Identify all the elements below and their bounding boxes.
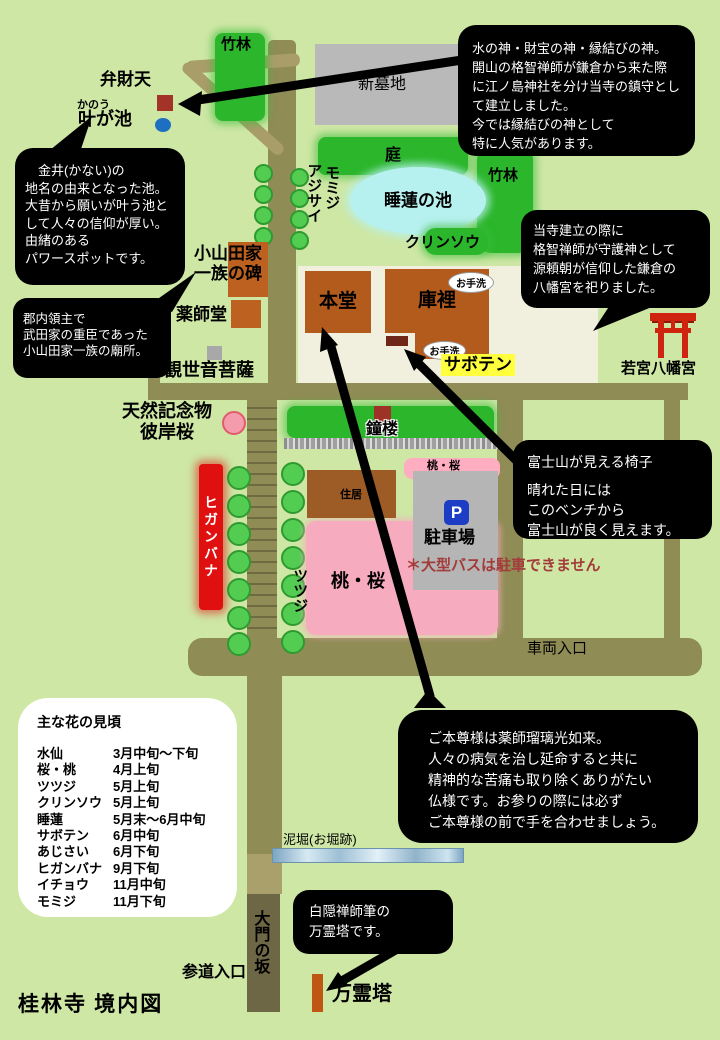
flower-name: イチョウ: [37, 877, 113, 893]
flower-period: 5月上旬: [113, 779, 159, 794]
bush: [227, 632, 251, 656]
kanagaike-note-bubble: 金井(かない)の 地名の由来となった池。 大昔から願いが叶う池と して人々の信仰…: [15, 148, 185, 285]
no-bus-note: ＊大型バスは駐車できません: [406, 557, 601, 574]
vehicle-entrance-label: 車両入口: [527, 640, 587, 657]
flower-period: 5月上旬: [113, 795, 159, 810]
moat-water: [272, 848, 464, 863]
bush: [227, 466, 251, 490]
bush: [254, 206, 273, 225]
kanagaike-pond-marker: [155, 118, 171, 132]
legend-row: イチョウ11月中旬: [37, 877, 237, 893]
flower-period: 4月上旬: [113, 762, 159, 777]
bamboo-grove-top-label: 竹林: [221, 36, 251, 53]
wakamiya-shrine-label: 若宮八幡宮: [621, 360, 696, 377]
bush: [281, 546, 305, 570]
hachimangu-note-bubble: 当寺建立の際に 格智禅師が守護神として 源頼朝が信仰した鎌倉の 八幡宮を祀りまし…: [521, 210, 710, 308]
legend-row: 桜・桃4月上旬: [37, 762, 237, 778]
bush: [227, 494, 251, 518]
banreito-label: 万霊塔: [332, 983, 392, 1006]
benzaiten-note-bubble: 水の神・財宝の神・縁結びの神。 開山の格智禅師が鎌倉から来た際 に江ノ島神社を分…: [458, 25, 695, 156]
kanagaike-label: 叶が池: [78, 109, 132, 130]
bush: [227, 550, 251, 574]
spider-lily-bed: ヒガンバナ: [199, 464, 223, 610]
oyamada-monument-label: 小山田家 一族の碑: [194, 244, 262, 283]
legend-row: あじさい6月下旬: [37, 844, 237, 860]
legend-row: モミジ11月下旬: [37, 894, 237, 910]
legend-row: ヒガンバナ9月下旬: [37, 861, 237, 877]
daimon-slope-label: 大門の坂: [250, 910, 268, 1002]
flower-period: 6月中旬: [113, 828, 159, 843]
flower-period: 11月下旬: [113, 894, 166, 909]
flower-period: 3月中旬〜下旬: [113, 746, 198, 761]
main-hall: 本堂: [305, 271, 371, 333]
hakuin-note-bubble: 白隠禅師筆の 万霊塔です。: [293, 890, 453, 954]
flower-period: 9月下旬: [113, 861, 159, 876]
parking-label: 駐車場: [424, 528, 475, 548]
kannon-statue-marker: [207, 346, 222, 360]
flower-period: 11月中旬: [113, 877, 166, 892]
hydrangea-label: アジサイ: [305, 163, 322, 251]
flower-period: 6月下旬: [113, 844, 159, 859]
bell-tower-label: 鐘楼: [366, 421, 398, 439]
flower-season-legend: 主な花の見頃 水仙3月中旬〜下旬 桜・桃4月上旬 ツツジ5月上旬 クリンソウ5月…: [18, 698, 237, 917]
bamboo-grove-right-label: 竹林: [488, 167, 518, 184]
legend-row: 水仙3月中旬〜下旬: [37, 746, 237, 762]
bush: [281, 490, 305, 514]
restroom-sign-upper: お手洗: [448, 272, 494, 293]
water-lily-pond: 睡蓮の池: [350, 167, 486, 234]
bush: [281, 630, 305, 654]
flower-name: クリンソウ: [37, 795, 113, 811]
flower-name: ツツジ: [37, 779, 113, 795]
bush: [254, 164, 273, 183]
maple-label: モミジ: [323, 165, 340, 229]
precinct-south-wall: [148, 383, 688, 400]
legend-title: 主な花の見頃: [37, 712, 237, 732]
legend-row: クリンソウ5月上旬: [37, 795, 237, 811]
peach-cherry-strip-label: 桃・桜: [427, 460, 460, 473]
new-cemetery-label: 新墓地: [358, 76, 406, 94]
parking-symbol: P: [451, 503, 462, 523]
natural-monument-label: 天然記念物 彼岸桜: [117, 401, 217, 442]
flower-name: 睡蓮: [37, 812, 113, 828]
bush: [254, 185, 273, 204]
flower-name: ヒガンバナ: [37, 861, 113, 877]
oyamada-note-bubble: 郡内領主で 武田家の重臣であった 小山田家一族の廟所。: [13, 298, 171, 378]
vehicle-road: [188, 638, 702, 676]
approach-path-lower: [247, 674, 282, 854]
yakushido-hall: [231, 300, 261, 328]
flower-name: 桜・桃: [37, 762, 113, 778]
kannon-label: 観世音菩薩: [164, 360, 254, 381]
bush: [281, 462, 305, 486]
flower-name: あじさい: [37, 844, 113, 860]
gravel-strip: [284, 438, 499, 449]
main-hall-label: 本堂: [319, 291, 357, 313]
peach-cherry-area-label: 桃・桜: [331, 571, 385, 592]
fuji-view-bench: [386, 336, 408, 346]
approach-entrance-label: 参道入口: [182, 964, 246, 982]
primrose-label: クリンソウ: [405, 234, 480, 251]
fuji-bench-body: 晴れた日には このベンチから 富士山が良く見えます。: [527, 480, 698, 540]
garden-label: 庭: [385, 147, 401, 165]
flower-name: モミジ: [37, 894, 113, 910]
banreito-monument: [312, 974, 323, 1012]
temple-grounds-map: 竹林 新墓地 庭 竹林 睡蓮の池 クリンソウ アジサイ モミジ 弁財天 かのう …: [0, 0, 720, 1040]
legend-row: 睡蓮5月末〜6月中旬: [37, 812, 237, 828]
cactus-label: サボテン: [441, 354, 515, 376]
bush: [227, 522, 251, 546]
flower-period: 5月末〜6月中旬: [113, 812, 205, 827]
water-lily-pond-label: 睡蓮の池: [384, 191, 452, 211]
arrow-to-benzaiten-head: [178, 91, 202, 116]
benzaiten-label: 弁財天: [100, 70, 151, 90]
azalea-label: ツツジ: [291, 568, 308, 630]
yakushido-label: 薬師堂: [176, 305, 227, 325]
restroom-label: お手洗: [456, 275, 486, 290]
residence-label: 住居: [340, 489, 362, 502]
map-title: 桂林寺 境内図: [18, 992, 163, 1016]
central-stairs-path: [247, 398, 277, 645]
fuji-bench-bubble: 富士山が見える椅子 晴れた日には このベンチから 富士山が良く見えます。: [513, 440, 712, 539]
torii-icon: [650, 310, 696, 358]
bush: [281, 518, 305, 542]
flower-name: サボテン: [37, 828, 113, 844]
kuri-hall-label: 庫裡: [418, 290, 456, 312]
honzon-bubble-tail: [414, 690, 446, 708]
legend-row: ツツジ5月上旬: [37, 779, 237, 795]
fuji-bench-title: 富士山が見える椅子: [527, 452, 698, 472]
honzon-note-bubble: ご本尊様は薬師瑠璃光如来。 人々の病気を治し延命すると共に 精神的な苦痛も取り除…: [398, 710, 698, 843]
bush: [227, 606, 251, 630]
parking-icon: P: [444, 500, 469, 525]
flower-name: 水仙: [37, 746, 113, 762]
bush: [227, 578, 251, 602]
higan-cherry-marker: [222, 411, 246, 435]
benzaiten-shrine-marker: [157, 95, 173, 111]
moat-label: 泥堀(お堀跡): [283, 833, 357, 848]
legend-row: サボテン6月中旬: [37, 828, 237, 844]
spider-lily-label: ヒガンバナ: [201, 495, 221, 580]
